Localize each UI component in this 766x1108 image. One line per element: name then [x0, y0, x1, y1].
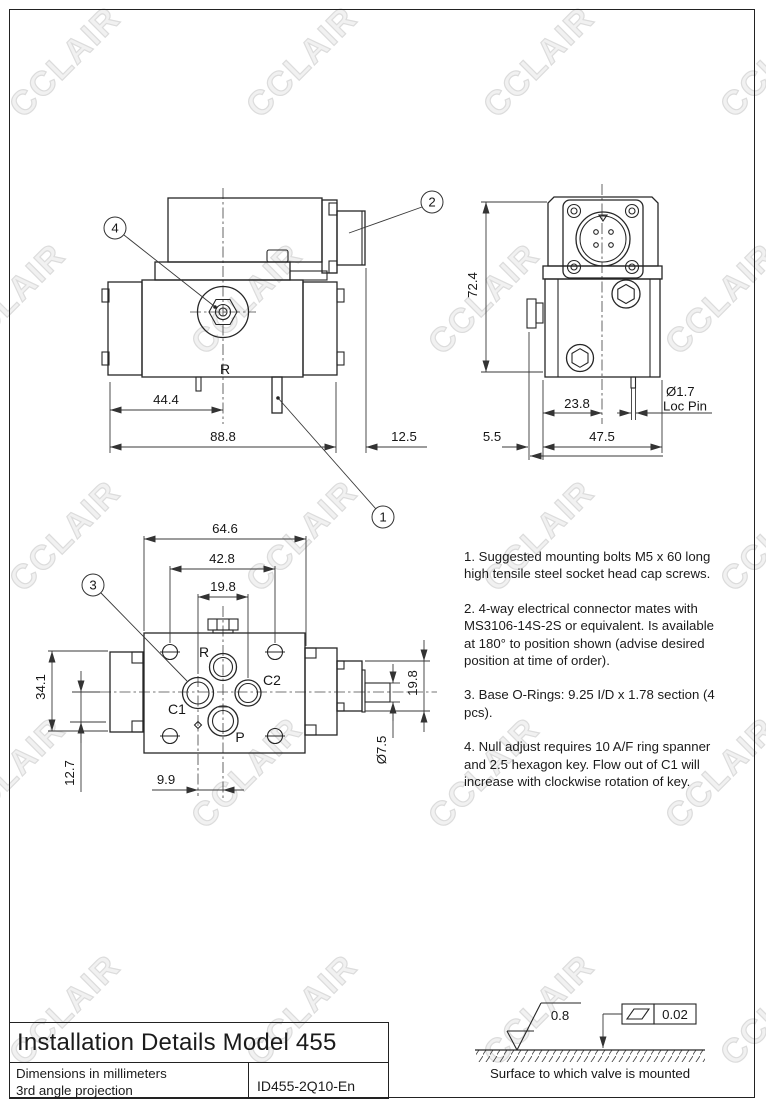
connector-pin — [594, 243, 599, 248]
note-2: 2. 4-way electrical connector mates with… — [464, 600, 728, 670]
callout-4-number: 4 — [111, 221, 118, 236]
bottom-view: R C1 C2 P 64.6 42.8 19.8 34.1 — [33, 521, 437, 798]
callout-2-number: 2 — [428, 195, 435, 210]
dim-34-1: 34.1 — [33, 674, 48, 700]
title-block: Installation Details Model 455 Dimension… — [9, 1022, 389, 1099]
side-tab-inner — [536, 303, 543, 323]
hex-plug-lower — [567, 345, 594, 372]
connector-bottom — [337, 661, 390, 712]
solenoid-coil — [155, 198, 337, 280]
side-tab-outer — [527, 299, 536, 328]
connector-pin — [609, 230, 614, 235]
drawing-title: Installation Details Model 455 — [10, 1023, 388, 1062]
loc-pin-side — [272, 377, 282, 413]
side-view: R 44.4 88.8 12.5 4 2 1 — [102, 188, 443, 528]
loc-pin-end — [631, 377, 636, 388]
callout-1-loc-pin: 1 — [276, 396, 394, 528]
callout-2-connector: 2 — [349, 191, 443, 233]
callout-4-null-adjust: 4 — [104, 217, 217, 309]
dim-72-4: 72.4 — [465, 272, 480, 298]
dim-64-6: 64.6 — [212, 521, 238, 536]
dim-44-4: 44.4 — [153, 392, 179, 407]
dim-loc-pin-dia: Ø1.7 — [666, 384, 695, 399]
note-4: 4. Null adjust requires 10 A/F ring span… — [464, 738, 728, 790]
dim-9-9: 9.9 — [157, 772, 175, 787]
dim-42-8: 42.8 — [209, 551, 235, 566]
dim-12-5: 12.5 — [391, 429, 417, 444]
connector-spigot — [365, 683, 390, 702]
small-pin — [196, 377, 201, 391]
dim-5-5: 5.5 — [483, 429, 501, 444]
dim-12-7: 12.7 — [62, 760, 77, 786]
valve-body-bottom — [110, 619, 390, 753]
mounting-surface-hatch — [475, 1050, 705, 1062]
dim-23-8: 23.8 — [564, 396, 590, 411]
mounting-surface-detail: 0.8 0.02 Surface to which valve is mount… — [475, 1003, 705, 1081]
label-port-p: P — [235, 729, 244, 745]
units-note: Dimensions in millimeters — [16, 1065, 248, 1082]
ports: R C1 C2 P — [168, 644, 281, 745]
end-view: 72.4 23.8 Ø1.7 Loc Pin 5.5 47.5 — [465, 184, 712, 460]
projection-note: 3rd angle projection — [16, 1082, 248, 1099]
side-port-r-label: R — [220, 361, 230, 377]
note-3: 3. Base O-Rings: 9.25 I/D x 1.78 section… — [464, 686, 728, 721]
title-block-info: Dimensions in millimeters 3rd angle proj… — [10, 1063, 248, 1098]
valve-body-end — [527, 266, 662, 388]
label-port-c2: C2 — [263, 672, 281, 688]
document-number: ID455-2Q10-En — [257, 1078, 355, 1094]
end-dimensions: 72.4 23.8 Ø1.7 Loc Pin 5.5 47.5 — [465, 202, 712, 460]
callout-3-number: 3 — [89, 578, 96, 593]
dim-47-5: 47.5 — [589, 429, 615, 444]
label-port-r: R — [199, 644, 209, 660]
dim-spigot-dia: Ø7.5 — [374, 736, 389, 765]
note-1: 1. Suggested mounting bolts M5 x 60 long… — [464, 548, 728, 583]
callout-3-orings: 3 — [82, 574, 187, 681]
connector-pin — [609, 243, 614, 248]
dim-19-8-connector: 19.8 — [405, 670, 420, 696]
nameplate-tab — [267, 250, 288, 262]
dim-88-8: 88.8 — [210, 429, 236, 444]
hex-plug-upper — [612, 280, 640, 308]
electrical-connector-side — [337, 211, 365, 265]
dim-19-8-ports: 19.8 — [210, 579, 236, 594]
flatness-symbol: 0.02 — [603, 1004, 696, 1048]
roughness-symbol: 0.8 — [507, 1003, 581, 1050]
callout-1-number: 1 — [379, 510, 386, 525]
label-port-c1: C1 — [168, 701, 186, 717]
notes-block: 1. Suggested mounting bolts M5 x 60 long… — [464, 548, 728, 807]
mounting-holes — [160, 645, 285, 744]
flatness-glyph — [627, 1009, 649, 1019]
side-dimensions: 44.4 88.8 12.5 — [110, 268, 427, 453]
loc-pin-label: Loc Pin — [663, 399, 707, 414]
flatness-value: 0.02 — [662, 1007, 688, 1022]
roughness-value: 0.8 — [551, 1008, 569, 1023]
mounting-surface-caption: Surface to which valve is mounted — [490, 1066, 690, 1081]
connector-pin — [594, 230, 599, 235]
